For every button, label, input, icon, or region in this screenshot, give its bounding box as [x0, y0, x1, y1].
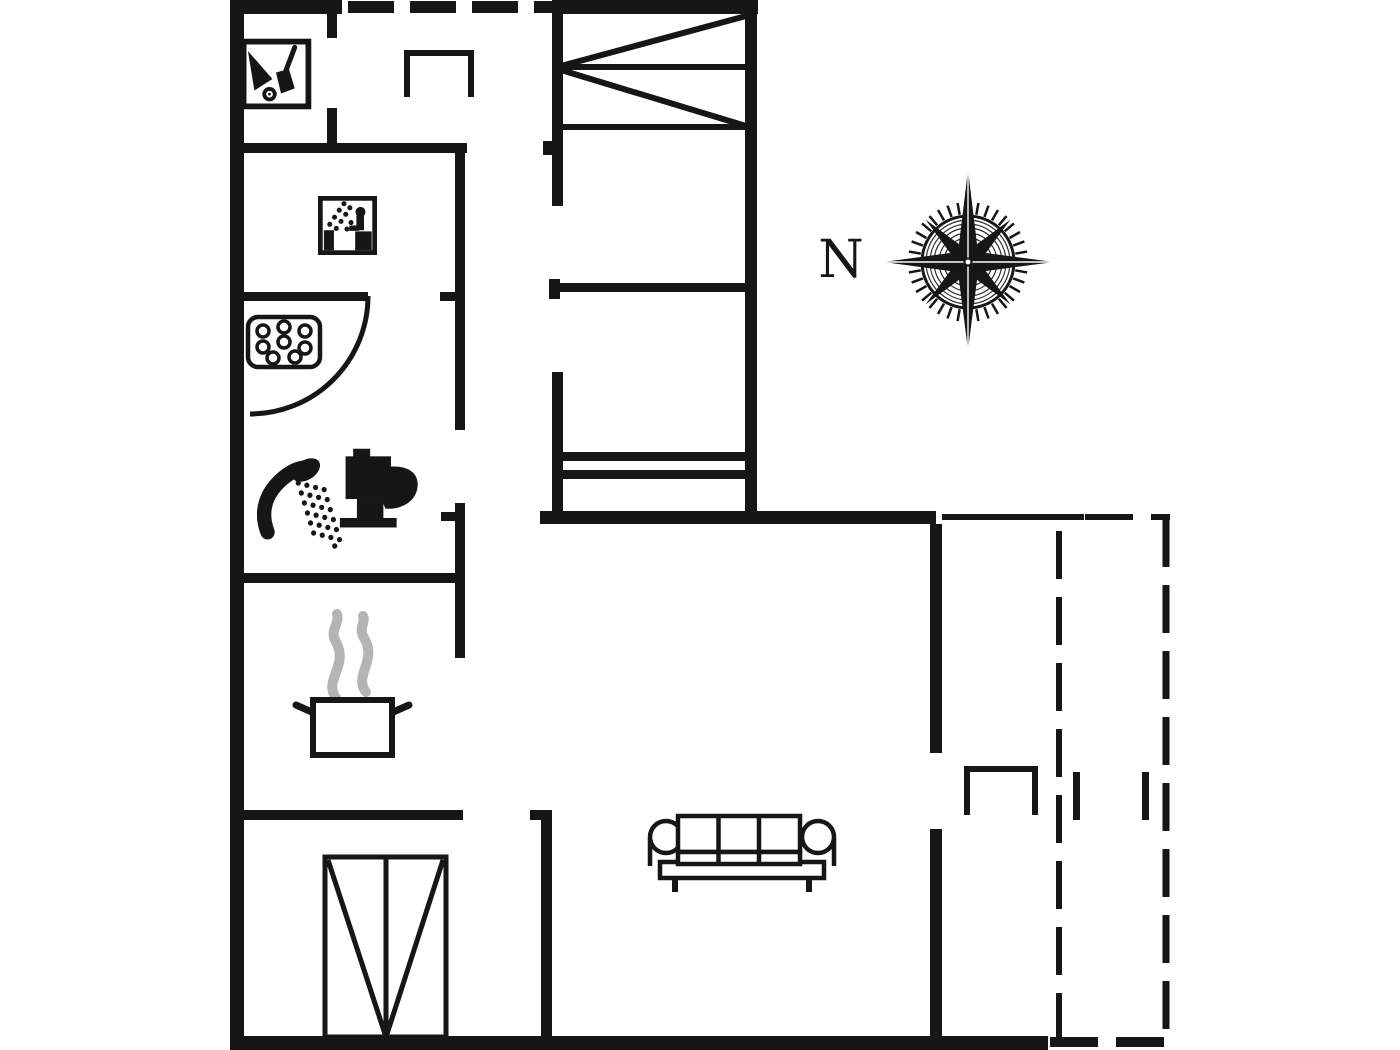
hall-left-wall-upper	[455, 147, 465, 430]
kitchen-top-wall	[230, 573, 465, 583]
floor-plan: N	[0, 0, 1400, 1050]
outer-wall-top-left	[230, 0, 342, 14]
bath-door-stub	[440, 292, 457, 301]
wing-left-wall-notch	[543, 141, 552, 155]
terrace-door-jamb-left	[1073, 772, 1080, 820]
outer-wall-top-right	[552, 0, 758, 14]
floor-plan-svg: N	[0, 0, 1400, 1050]
living-left-wall	[541, 810, 552, 1040]
outer-wall-left	[230, 0, 244, 1050]
whirlpool-icon	[248, 317, 320, 367]
bunk-bed-diagonal-upper	[561, 16, 746, 66]
garden-tools-icon	[244, 42, 309, 107]
shower-icon	[264, 453, 342, 548]
wing-left-wall-upper	[552, 14, 563, 206]
utility-door-stub-bottom	[327, 108, 337, 148]
cooking-pot-icon	[296, 614, 409, 755]
double-bed-bar-2	[558, 470, 750, 479]
double-bed-bar-1	[558, 452, 750, 461]
compass-rose-icon	[883, 170, 1054, 350]
wardrobe-diagonal-left	[328, 860, 385, 1034]
wing-left-wall-lower	[552, 372, 563, 524]
compass-north-label: N	[818, 230, 864, 290]
living-right-wall-lower	[930, 829, 942, 1040]
bath-top-wall	[230, 292, 368, 301]
hall-cabinet	[407, 53, 471, 97]
sofa-icon	[650, 816, 834, 892]
living-right-wall-upper	[930, 524, 942, 753]
kitchen-bottom-wall	[230, 810, 463, 820]
terrace-stove	[967, 769, 1035, 815]
toilet-icon	[340, 449, 418, 528]
bunk-bed-diagonal-lower	[561, 70, 746, 126]
terrace-door-jamb-right	[1142, 772, 1149, 820]
bedroom-divider-wall	[555, 283, 757, 292]
utility-door-stub-top	[327, 14, 337, 38]
utility-sauna-wall	[230, 143, 467, 153]
sauna-icon	[320, 198, 374, 252]
hall-left-tick	[441, 512, 456, 521]
wardrobe-diagonal-right	[387, 860, 443, 1034]
bedroom-wing-right-wall	[745, 0, 757, 524]
mid-horizontal-wall	[540, 511, 936, 524]
